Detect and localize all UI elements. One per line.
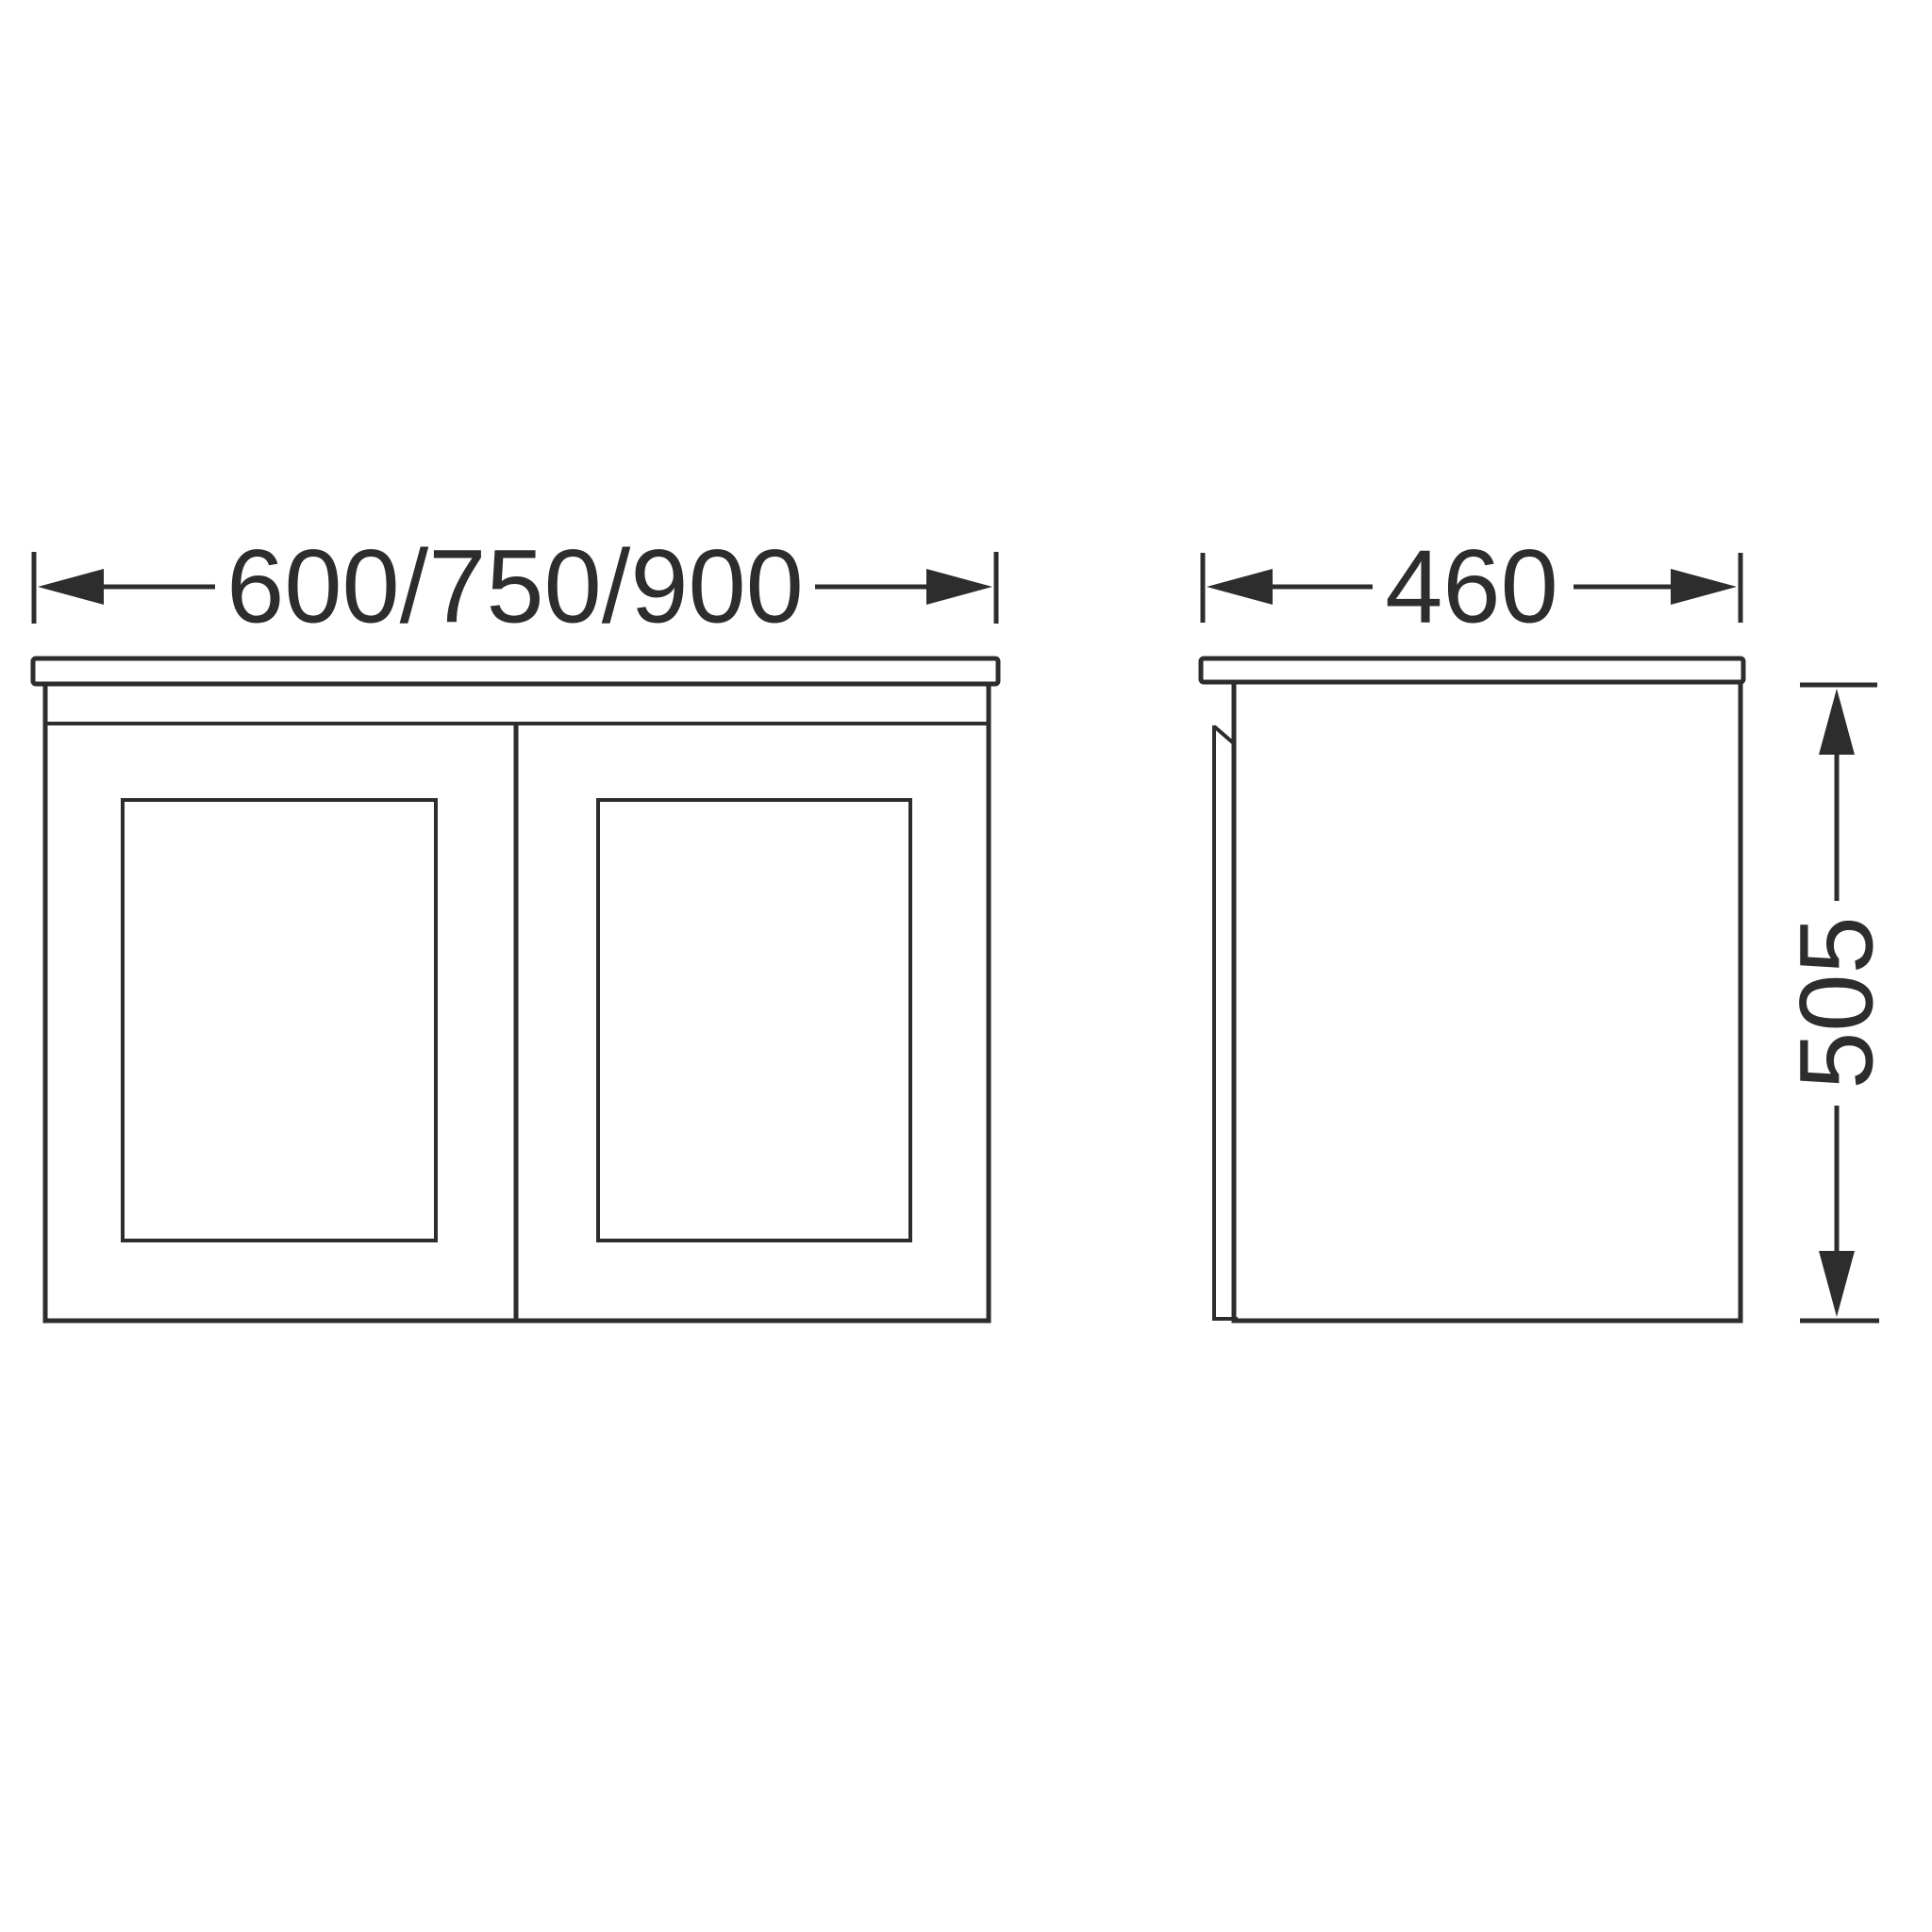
side-cabinet-body [1234, 682, 1740, 1321]
side-height-dimension-label: 505 [1779, 916, 1895, 1090]
side-depth-dimension-label: 460 [1385, 529, 1558, 645]
arrow-right-icon [1671, 569, 1737, 605]
arrow-left-icon [38, 569, 104, 605]
arrow-up-icon [1819, 689, 1855, 755]
front-width-dimension-label: 600/750/900 [226, 529, 804, 645]
technical-drawing-canvas: 600/750/900 460 505 [0, 0, 1932, 1932]
right-door-panel [598, 800, 910, 1241]
front-countertop [33, 658, 998, 684]
arrow-down-icon [1819, 1251, 1855, 1317]
depth-dimension: 460 [1203, 529, 1740, 645]
arrow-right-icon [926, 569, 992, 605]
front-view [33, 658, 998, 1321]
arrow-left-icon [1207, 569, 1273, 605]
cabinet-dimension-diagram: 600/750/900 460 505 [0, 0, 1932, 1932]
side-countertop [1201, 658, 1743, 682]
front-width-dimension: 600/750/900 [34, 529, 996, 645]
height-dimension: 505 [1779, 685, 1895, 1321]
side-view [1201, 658, 1743, 1321]
left-door-panel [123, 800, 436, 1241]
